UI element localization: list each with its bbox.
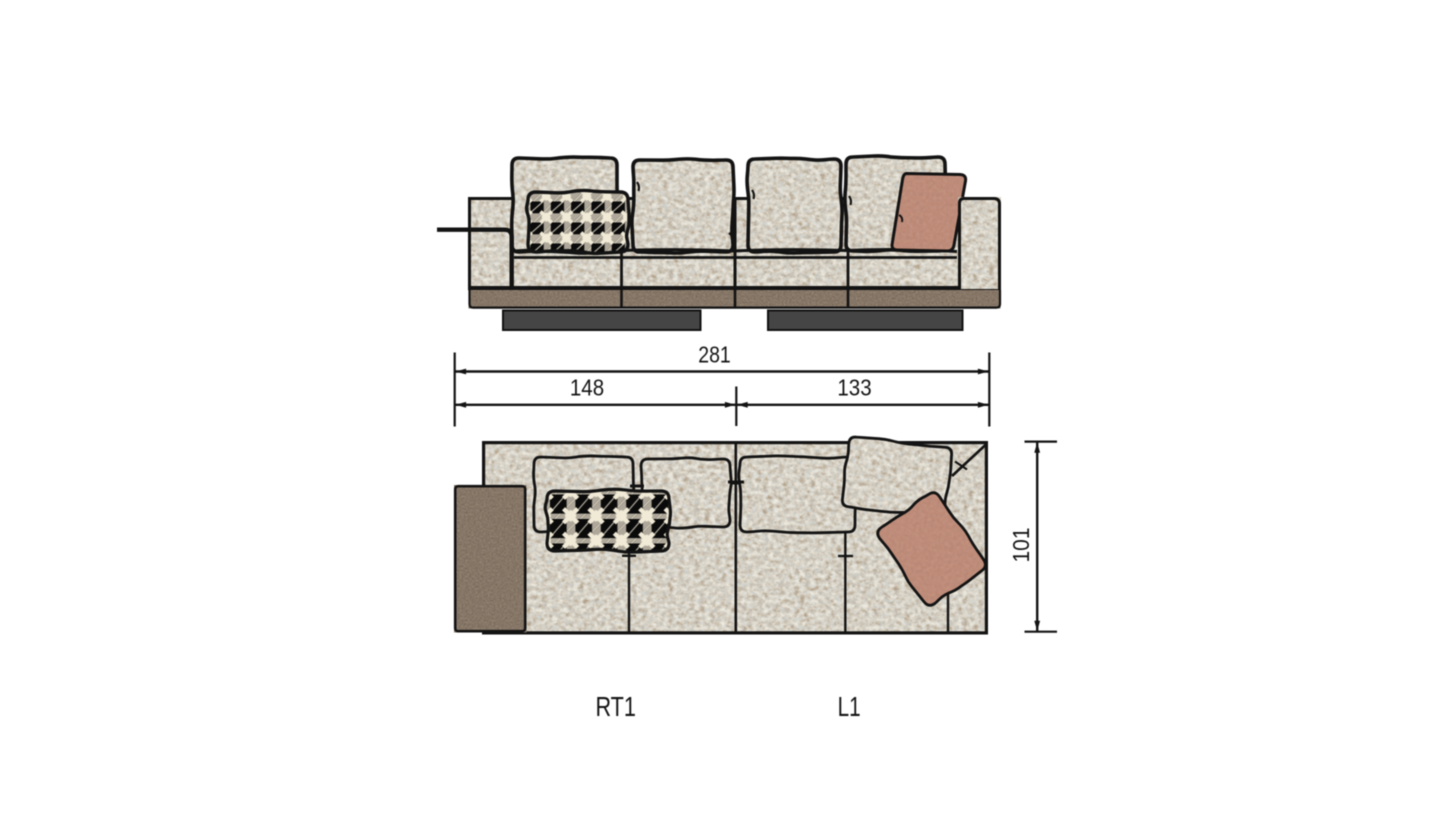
svg-text:281: 281 bbox=[698, 342, 731, 368]
svg-text:RT1: RT1 bbox=[595, 691, 636, 722]
svg-text:133: 133 bbox=[837, 374, 871, 400]
svg-text:148: 148 bbox=[570, 374, 604, 400]
svg-text:L1: L1 bbox=[838, 691, 861, 722]
svg-text:101: 101 bbox=[1008, 528, 1034, 563]
